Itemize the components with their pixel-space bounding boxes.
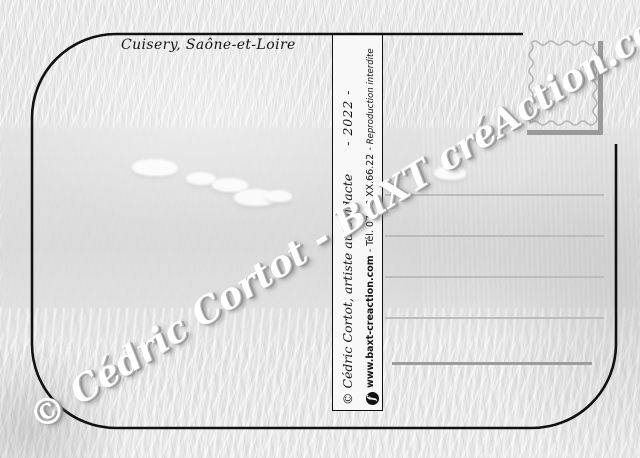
spine-credit-line: © Cédric Cortot, artiste autodidacte- 20… [337,55,359,405]
photo-caption: Cuisery, Saône-et-Loire [121,37,296,53]
postcard-proof: Cuisery, Saône-et-Loire © Cédric Cortot,… [0,0,640,458]
separator-dash: - [365,246,376,255]
separator-dash: - [365,144,376,153]
facebook-icon: f [366,392,379,405]
address-line-bold [392,362,592,365]
stamp-box [527,37,599,129]
phone-text: Tél. 07.88.XX.66.22 [365,154,376,246]
credit-text: © Cédric Cortot, artiste autodidacte [340,174,355,405]
address-line [385,194,604,196]
notice-text: Reproduction interdite [366,48,376,144]
address-line [385,235,604,237]
divider-spine: © Cédric Cortot, artiste autodidacte- 20… [332,34,383,411]
spine-contact-line: fwww.baxt-creaction.com-Tél. 07.88.XX.66… [360,51,381,405]
address-line [385,276,604,278]
website-text: www.baxt-creaction.com [365,255,376,388]
corner-bracket-vertical [598,41,603,135]
corner-bracket-horizontal [527,130,603,135]
year-text: - 2022 - [340,90,355,146]
address-line [385,317,604,319]
